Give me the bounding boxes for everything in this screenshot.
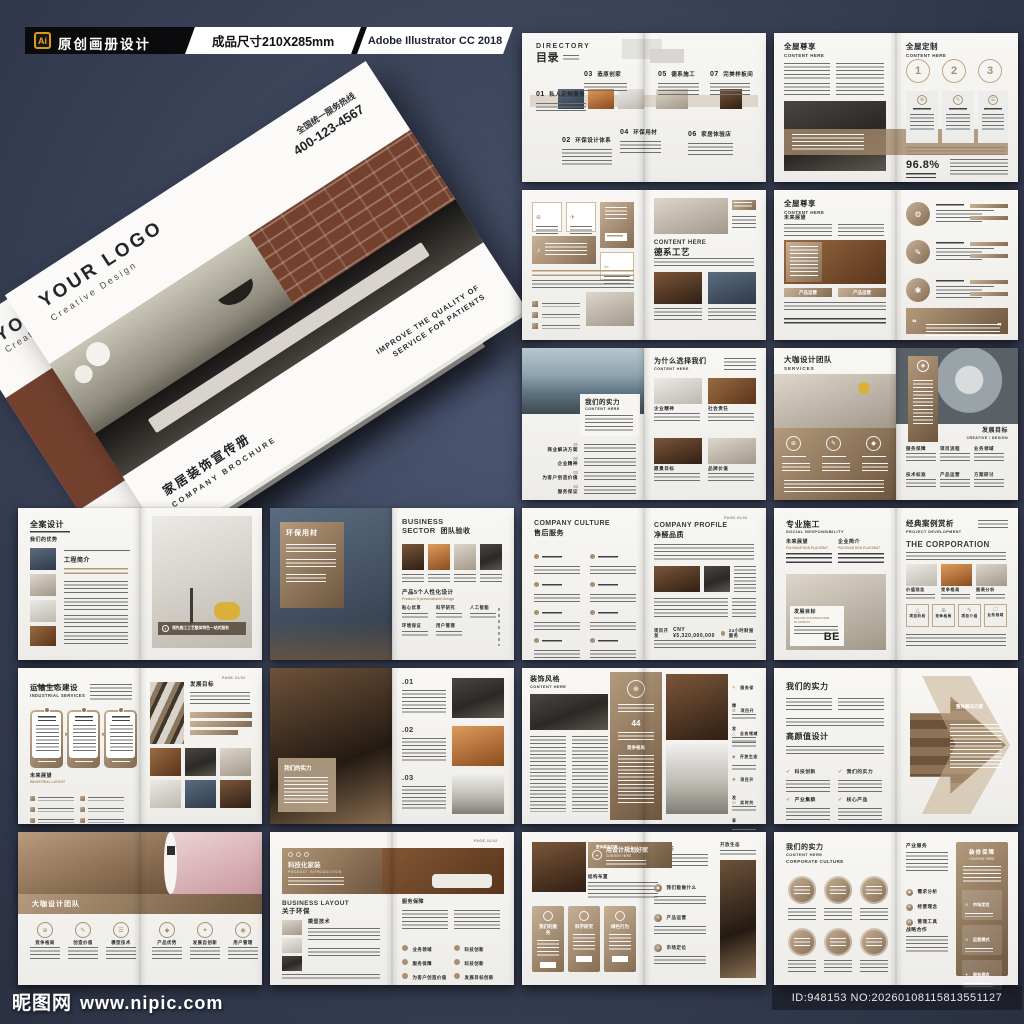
decor: ◆ bbox=[159, 922, 175, 938]
decor: ⊙ bbox=[965, 902, 968, 907]
decor: 管理工具 bbox=[917, 919, 937, 924]
spread-eco-material: 环保用材 BUSINESSSECTOR 团队验收 产品5个人性化设计Produc… bbox=[270, 508, 514, 660]
text-lines bbox=[838, 698, 884, 712]
band-title: 大咖设计团队 bbox=[32, 899, 80, 909]
decor: SOCIAL RESPONSIBILITY bbox=[786, 530, 844, 535]
decor: ✎ bbox=[654, 914, 662, 922]
culture-item bbox=[590, 574, 640, 603]
text-lines bbox=[830, 886, 846, 894]
text-lines bbox=[965, 948, 993, 952]
text-lines bbox=[936, 280, 964, 283]
mini-item: 人工智能 bbox=[470, 606, 498, 619]
decor bbox=[708, 438, 756, 464]
text-lines bbox=[532, 270, 634, 276]
bubble-card bbox=[104, 710, 137, 768]
decor bbox=[970, 280, 1008, 284]
decor: 用户管理 bbox=[228, 940, 258, 945]
art-corridor-photo bbox=[720, 860, 756, 978]
decor: SECTOR bbox=[402, 526, 436, 535]
icon-box: □业务领域 bbox=[984, 604, 1007, 627]
decor: 产品运营 bbox=[666, 915, 686, 920]
decor: 发展自创新 bbox=[190, 940, 220, 945]
text-lines bbox=[950, 159, 1008, 175]
decor bbox=[64, 550, 130, 551]
decor: 装饰风格CONTENT HERE bbox=[530, 676, 566, 690]
decor: 产品优势 bbox=[152, 940, 182, 945]
decor: 造原创家 bbox=[597, 72, 621, 78]
toc-item: 04 环保用材 bbox=[620, 121, 668, 155]
grid-photo bbox=[220, 780, 251, 808]
mid-item: ◉ 我们能做什么 bbox=[654, 876, 710, 905]
decor: ⊙ bbox=[654, 944, 662, 952]
decor: 竞争格局 bbox=[30, 940, 60, 945]
decor: 05 bbox=[658, 71, 667, 78]
text-lines bbox=[982, 114, 1004, 130]
numbered-item: 02企业精神 bbox=[532, 456, 578, 466]
text-lines bbox=[654, 956, 706, 965]
toc-item: 06 家居体验店 bbox=[688, 123, 740, 157]
decor: ⊕ bbox=[37, 922, 53, 938]
text-lines bbox=[536, 226, 558, 236]
decor: ⊙ 市场定位 bbox=[654, 936, 710, 954]
value-circle bbox=[860, 928, 888, 956]
toc-item: 07 完美样板间 bbox=[710, 63, 756, 95]
directory-cn: 目录 bbox=[536, 52, 590, 65]
text-lines bbox=[906, 936, 948, 954]
text-lines bbox=[64, 615, 128, 627]
decor bbox=[858, 382, 870, 394]
decor: 方案研讨 bbox=[974, 472, 1004, 477]
feature-card: ⊕ bbox=[906, 91, 938, 143]
decor: 02 bbox=[562, 137, 571, 144]
text-lines bbox=[984, 108, 1002, 111]
text-lines bbox=[784, 302, 886, 312]
decor: 全屋定制CONTENT HERE bbox=[906, 43, 946, 58]
svc-item: 发展目标创新 bbox=[454, 966, 494, 984]
text-lines bbox=[970, 210, 994, 213]
text-lines bbox=[64, 632, 128, 644]
page-title: 我们的实力 bbox=[585, 399, 635, 406]
decor bbox=[721, 631, 725, 636]
sub-col: 企业简介PULVINAR NON PLACERAT bbox=[838, 540, 884, 563]
text-lines bbox=[708, 413, 754, 423]
decor bbox=[615, 911, 625, 921]
text-lines bbox=[618, 732, 654, 740]
section-title: 发展目标 bbox=[944, 428, 1008, 435]
decor bbox=[976, 564, 1007, 586]
text-lines bbox=[782, 463, 810, 472]
text-lines bbox=[906, 453, 936, 462]
decor: 04 bbox=[620, 129, 629, 136]
team-col: ✦发展自创新 bbox=[190, 922, 220, 961]
text-lines bbox=[609, 934, 631, 952]
text-lines bbox=[598, 584, 618, 587]
text-lines bbox=[584, 458, 636, 466]
poster-canvas: Ai 原创画册设计 成品尺寸210X285mm Adobe Illustrato… bbox=[0, 0, 1024, 1024]
decor: ◆ bbox=[866, 436, 881, 451]
decor: ◉ bbox=[917, 360, 929, 372]
beam-photo bbox=[150, 682, 184, 744]
check-item: ✔ 产业集群 bbox=[786, 788, 832, 820]
text-lines bbox=[75, 716, 93, 721]
decor: ⚙ bbox=[906, 919, 913, 926]
text-lines bbox=[585, 415, 633, 431]
decor bbox=[454, 959, 460, 965]
decor: 运输生态建设INDUSTRIAL SERVICES bbox=[30, 684, 88, 698]
text-lines bbox=[790, 246, 818, 276]
mid-item: ✎ 产品运营 bbox=[654, 906, 710, 935]
decor: 结构布置 bbox=[588, 874, 608, 879]
image-id-text: ID:948153 NO:20260108115813551127 bbox=[792, 992, 1003, 1004]
value-circle bbox=[860, 876, 888, 904]
text-lines bbox=[618, 755, 654, 803]
decor: 环保设计体系 bbox=[575, 138, 611, 144]
decor: 我们能做什么 bbox=[666, 885, 696, 890]
photo-overlay bbox=[786, 242, 822, 282]
team-col: ◉用户管理 bbox=[228, 922, 258, 961]
decor: ✎ bbox=[959, 607, 980, 614]
thumb-photo bbox=[30, 600, 56, 622]
text-lines bbox=[654, 598, 728, 618]
pink-bedroom-photo bbox=[170, 832, 262, 894]
decor bbox=[534, 554, 539, 559]
decor: 项目流程 bbox=[940, 446, 970, 451]
page-title: COMPANY PROFILE bbox=[654, 522, 727, 530]
decor: 产品运营 bbox=[799, 290, 817, 296]
sub-col: 未来展望PULVINAR NON PLACERAT bbox=[786, 540, 832, 563]
decor: COMPANY CULTURE售后服务 bbox=[534, 520, 610, 538]
decor: ⊕ bbox=[786, 436, 801, 451]
decor: DOLOR, PULVINAR NON PLACERAT bbox=[794, 616, 840, 624]
grid-photo bbox=[402, 544, 424, 570]
decor: ⚙ bbox=[732, 708, 736, 713]
step-circle: 1 bbox=[906, 59, 930, 83]
decor: 企业精神 bbox=[654, 406, 702, 411]
shop-photo bbox=[530, 694, 608, 730]
text-lines bbox=[836, 63, 884, 79]
text-lines bbox=[786, 746, 884, 754]
decor: 战略合作 bbox=[906, 928, 927, 934]
decor: 私人定制服务 bbox=[549, 92, 585, 98]
label-bar: 产品运营 bbox=[838, 288, 886, 297]
photo-cell: 企业精神 bbox=[654, 378, 702, 423]
decor: 全屋尊享CONTENT HERE bbox=[784, 43, 824, 58]
seal-icon: ⊕ bbox=[627, 680, 645, 698]
text-lines bbox=[284, 777, 328, 805]
decor bbox=[402, 945, 408, 951]
text-lines bbox=[786, 553, 832, 563]
feature-card: ✎ bbox=[942, 91, 974, 143]
decor: ✦ bbox=[965, 972, 968, 977]
decor: 03 造原创家 bbox=[584, 63, 634, 81]
decor: CONTENT HERE bbox=[606, 854, 648, 858]
text-lines bbox=[584, 486, 636, 494]
decor: ⊙ bbox=[965, 937, 968, 942]
text-lines bbox=[792, 134, 864, 150]
decor: SERVICES bbox=[784, 366, 832, 371]
decor: 商业解决方案 bbox=[532, 447, 578, 452]
compass-icon: ⊕ bbox=[536, 215, 541, 221]
decor: 项目阶段 bbox=[907, 614, 928, 618]
decor: .02 bbox=[402, 726, 414, 735]
mini-item: 科学研究 bbox=[436, 606, 464, 619]
text-lines bbox=[563, 55, 579, 62]
text-lines bbox=[605, 207, 627, 219]
text-lines bbox=[974, 453, 1004, 462]
text-lines bbox=[454, 910, 500, 930]
text-lines bbox=[838, 553, 884, 563]
label-bar: 产品运营 bbox=[784, 288, 832, 297]
icon-row bbox=[532, 316, 580, 334]
decor: 家居体验店 bbox=[701, 132, 731, 138]
text-lines bbox=[978, 520, 1008, 530]
text-lines bbox=[936, 242, 964, 245]
brown-card: ♪ bbox=[532, 236, 596, 264]
feature-card: ☰ bbox=[978, 91, 1008, 143]
text-lines bbox=[402, 910, 448, 930]
text-lines bbox=[710, 83, 750, 95]
culture-item bbox=[534, 574, 584, 603]
text-lines bbox=[940, 453, 970, 462]
decor: 07 bbox=[710, 71, 719, 78]
team-col: ◆产品优势 bbox=[152, 922, 182, 961]
decor: 环保用材 bbox=[633, 130, 657, 136]
text-lines bbox=[910, 114, 934, 130]
decor: △ 业务领域 bbox=[732, 722, 758, 740]
decor: 产品运营 bbox=[940, 472, 970, 477]
spread-construction: 专业施工SOCIAL RESPONSIBILITY 未来展望PULVINAR N… bbox=[774, 508, 1018, 660]
decor: 德系施工 bbox=[671, 72, 695, 78]
text-lines bbox=[570, 226, 592, 236]
spread-custom-home: 全屋尊享CONTENT HERE 全屋定制CONTENT HERE 1 2 3 … bbox=[774, 33, 1018, 182]
page-title: 全案设计 bbox=[30, 520, 70, 529]
text-lines bbox=[545, 243, 587, 257]
text-lines bbox=[824, 960, 852, 972]
wavy-divider bbox=[164, 832, 177, 894]
watermark-site: 昵图网 bbox=[12, 988, 72, 1015]
decor: CONTENT HERE bbox=[654, 367, 707, 371]
page-title: 运输生态建设 bbox=[30, 684, 88, 693]
page-title: 我们的实力 bbox=[786, 682, 829, 691]
decor bbox=[579, 911, 589, 921]
decor: 完美样板间 bbox=[723, 72, 753, 78]
mini-col: 项目流程 bbox=[940, 446, 970, 462]
text-lines bbox=[906, 852, 948, 872]
decor bbox=[941, 564, 972, 586]
text-lines bbox=[532, 280, 634, 288]
decor bbox=[69, 712, 98, 758]
text-lines bbox=[963, 866, 1001, 884]
decor: ✎ bbox=[732, 685, 736, 690]
page-title: 全屋尊享 bbox=[784, 43, 824, 52]
text-lines bbox=[534, 650, 580, 659]
decor: 为客户创造价值 bbox=[412, 975, 446, 980]
toc-item: 03 造原创家 bbox=[584, 63, 634, 93]
decor: CNY ¥5,320,000,000 bbox=[673, 628, 717, 640]
decor bbox=[906, 564, 937, 586]
text-lines bbox=[784, 480, 884, 492]
mini-item: 用户管理 bbox=[436, 624, 468, 637]
text-lines bbox=[654, 258, 754, 268]
decor bbox=[402, 959, 408, 965]
text-lines bbox=[976, 594, 1005, 600]
stat-row: 项目开发 CNY ¥5,320,000,000 24小时财报服务 bbox=[654, 628, 756, 640]
decor bbox=[576, 956, 592, 962]
text-lines bbox=[190, 692, 250, 706]
decor: 关于环保 bbox=[282, 908, 349, 915]
brown-band: 大咖设计团队 bbox=[18, 894, 262, 914]
arrow-label: 整体解决方案 bbox=[956, 704, 983, 710]
text-lines bbox=[584, 472, 636, 480]
page-title: 装饰风格 bbox=[530, 676, 566, 684]
text-lines bbox=[402, 738, 446, 762]
ai-icon: Ai bbox=[34, 32, 51, 49]
svc-item: 为客户创造价值 bbox=[402, 966, 447, 984]
decor: ◉ bbox=[235, 922, 251, 938]
layout-item bbox=[80, 810, 124, 828]
team-col: ☰模型技术 bbox=[106, 922, 136, 961]
decor bbox=[296, 852, 301, 857]
decor: 科技创新 bbox=[795, 770, 816, 775]
text-lines bbox=[794, 886, 810, 894]
text-lines bbox=[658, 83, 699, 95]
lobby-photo bbox=[666, 744, 728, 814]
spread-culture-profile: COMPANY CULTURE售后服务 PAGE-01/02 COMPANY P… bbox=[522, 508, 766, 660]
decor: △ bbox=[732, 731, 735, 736]
text-lines bbox=[724, 358, 756, 372]
text-lines bbox=[720, 850, 756, 856]
sofa-photo bbox=[586, 292, 634, 326]
decor bbox=[590, 554, 595, 559]
decor bbox=[534, 638, 539, 643]
text-lines bbox=[282, 974, 380, 980]
bedroom-photo bbox=[666, 674, 728, 740]
decor: 发展目标CREATIVE / DESIGN bbox=[944, 428, 1008, 440]
toc-item: 02 环保设计体系 bbox=[562, 129, 620, 165]
thumb-photo bbox=[282, 956, 302, 971]
text-lines bbox=[708, 308, 756, 322]
text-lines bbox=[286, 544, 336, 553]
text-lines bbox=[941, 594, 970, 600]
text-lines bbox=[38, 819, 74, 824]
decor: 愿景目标 bbox=[654, 466, 702, 471]
text-lines bbox=[562, 149, 612, 165]
decor: 我们的实力CONTENT HERECORPORATE CULTURE bbox=[786, 844, 844, 864]
text-lines bbox=[974, 479, 1004, 488]
mini-col: 服务保障 bbox=[906, 446, 936, 462]
text-lines bbox=[949, 108, 967, 111]
text-lines bbox=[64, 581, 128, 593]
decor: 服务保障 bbox=[906, 446, 936, 451]
text-lines bbox=[30, 947, 60, 961]
section-title: 工程简介 bbox=[64, 558, 90, 565]
culture-item bbox=[590, 546, 640, 575]
page-title: 为什么选择我们 bbox=[654, 358, 707, 366]
pillar-card: 我们的服务 bbox=[532, 906, 564, 972]
step-circle: 3 bbox=[978, 59, 1002, 83]
decor bbox=[304, 852, 309, 857]
decor: 02 环保设计体系 bbox=[562, 129, 620, 147]
icon-box: ✎项目介绍 bbox=[958, 604, 981, 627]
decor: 3 bbox=[987, 65, 993, 77]
decor: ⊕ bbox=[917, 95, 927, 105]
text-lines bbox=[454, 574, 476, 584]
decor bbox=[106, 712, 135, 758]
decor: SECTOR 团队验收 bbox=[402, 527, 471, 536]
text-lines bbox=[542, 640, 562, 643]
decor bbox=[270, 620, 392, 660]
decor: PULVINAR NON PLACERAT bbox=[838, 546, 884, 550]
decor: INDUSTRIAL SERVICES bbox=[30, 694, 88, 699]
decor: 服务理念 bbox=[973, 972, 990, 977]
corridor-photo bbox=[654, 272, 702, 304]
decor bbox=[654, 378, 702, 404]
decor: 开放生态 bbox=[740, 754, 758, 759]
interior-photo bbox=[654, 566, 700, 592]
decor: 发展目标创新 bbox=[464, 975, 493, 980]
overlay-title: 我们的实力 bbox=[284, 764, 330, 772]
page-number: PAGE-01/02 bbox=[474, 839, 498, 843]
text-lines bbox=[542, 325, 580, 329]
decor: 产品5个人性化设计Product 5 personalized design bbox=[402, 590, 454, 601]
text-lines bbox=[38, 761, 56, 764]
decor: ✎ bbox=[75, 922, 91, 938]
text-lines bbox=[688, 143, 733, 157]
text-lines bbox=[618, 704, 654, 714]
corp-heading: THE CORPORATION bbox=[906, 540, 990, 549]
stat-value: 96.8% bbox=[906, 159, 940, 172]
decor bbox=[590, 638, 595, 643]
text-lines bbox=[88, 819, 124, 824]
banner-photo: 科技化家装 PRODUCT INTRODUCTION bbox=[282, 848, 504, 894]
text-lines bbox=[584, 83, 627, 93]
photo-cell: 品牌价值 bbox=[708, 438, 756, 483]
text-lines bbox=[537, 940, 559, 958]
page-title: BUSINESS LAYOUT bbox=[282, 900, 349, 907]
decor bbox=[650, 49, 684, 63]
text-lines bbox=[860, 908, 888, 920]
brown-band bbox=[784, 129, 1008, 155]
decor: 运营模式 bbox=[973, 937, 990, 942]
decor: ☰ bbox=[988, 95, 998, 105]
decor: 全屋尊享CONTENT HERE bbox=[784, 200, 824, 215]
directory-en: DIRECTORY bbox=[536, 43, 590, 51]
decor bbox=[590, 610, 595, 615]
spread-team-circles: 大咖设计团队 ⊕竞争格局 ✎创造价值 ☰模型技术 ◆产品优势 ✦发展自创新 ◉用… bbox=[18, 832, 262, 985]
office-photo bbox=[704, 566, 730, 592]
text-lines bbox=[784, 63, 830, 79]
text-lines bbox=[64, 598, 128, 610]
palm-silhouette bbox=[215, 277, 262, 315]
decor: CORPORATE CULTURE bbox=[786, 859, 844, 864]
text-lines bbox=[940, 479, 970, 488]
icon-card: ✈ bbox=[566, 202, 596, 232]
text-lines bbox=[402, 631, 428, 637]
decor: ◆ bbox=[732, 754, 735, 759]
decor: ⊙ 实时共享 bbox=[732, 791, 758, 827]
decor: 05 德系施工 bbox=[658, 63, 706, 81]
panel-card: 环保用材 bbox=[280, 522, 344, 608]
decor: 品牌价值 bbox=[708, 466, 756, 471]
decor: 企业精神 bbox=[532, 461, 578, 466]
text-lines bbox=[536, 103, 586, 113]
text-lines bbox=[606, 860, 646, 865]
text-lines bbox=[68, 947, 98, 961]
icon-box: △项目阶段 bbox=[906, 604, 929, 627]
grid-photo bbox=[428, 544, 450, 570]
decor: 社会责任 bbox=[708, 406, 756, 411]
text-lines bbox=[788, 908, 816, 920]
